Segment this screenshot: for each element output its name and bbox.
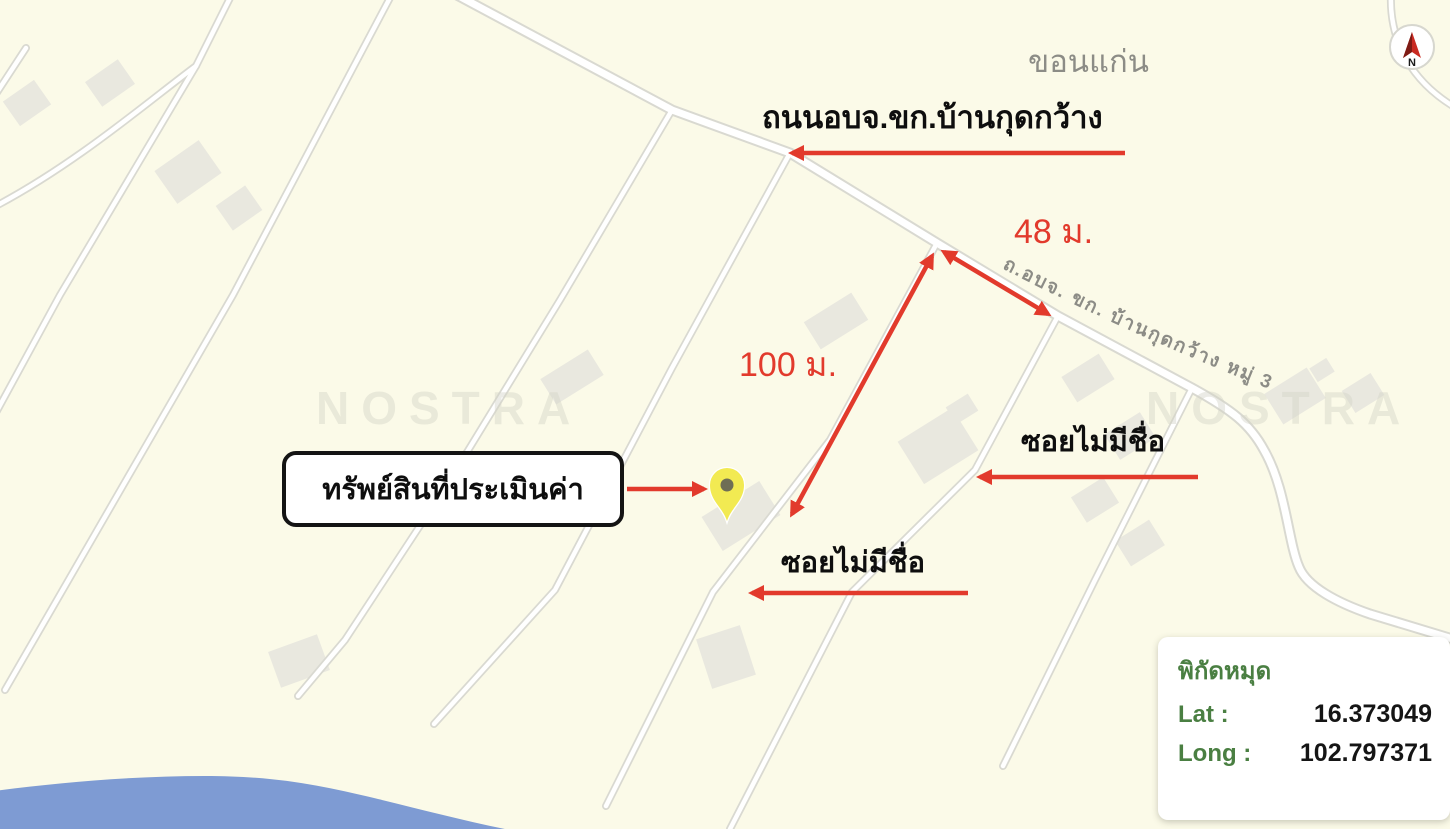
map-canvas: NOSTRA NOSTRA ถ.อบจ. ขก. บ้านกุดกว้าง หม…: [0, 0, 1450, 829]
road-inline-label: ถ.อบจ. ขก. บ้านกุดกว้าง หมู่ 3: [1000, 254, 1277, 394]
coordinates-panel: พิกัดหมุด Lat : 16.373049 Long : 102.797…: [1158, 637, 1450, 820]
long-label: Long :: [1178, 740, 1251, 768]
lat-row: Lat : 16.373049: [1178, 700, 1432, 729]
main-road-name-label: ถนนอบจ.ขก.บ้านกุดกว้าง: [762, 98, 1103, 138]
long-row: Long : 102.797371: [1178, 739, 1432, 768]
compass-n-label: N: [1408, 57, 1416, 69]
coordinates-title: พิกัดหมุด: [1178, 651, 1432, 690]
distance-100m-label: 100 ม.: [739, 343, 837, 387]
soi-d-pin: [606, 243, 937, 806]
lat-value: 16.373049: [1314, 700, 1432, 729]
soi-label-bottom: ซอยไม่มีชื่อ: [781, 545, 925, 583]
lat-label: Lat :: [1178, 701, 1229, 729]
nostra-watermark-right: NOSTRA: [1146, 382, 1412, 434]
soi-label-right: ซอยไม่มีชื่อ: [1021, 424, 1165, 462]
distance-48m-label: 48 ม.: [1014, 210, 1093, 254]
north-compass: N: [1390, 25, 1434, 69]
water-body: [0, 776, 566, 829]
main-road: [455, 0, 1450, 640]
property-callout-label: ทรัพย์สินที่ประเมินค่า: [322, 466, 584, 512]
property-callout-box: ทรัพย์สินที่ประเมินค่า: [282, 451, 624, 527]
long-value: 102.797371: [1300, 739, 1432, 768]
nostra-watermark-left: NOSTRA: [316, 382, 582, 434]
province-label: ขอนแก่น: [1028, 42, 1149, 82]
